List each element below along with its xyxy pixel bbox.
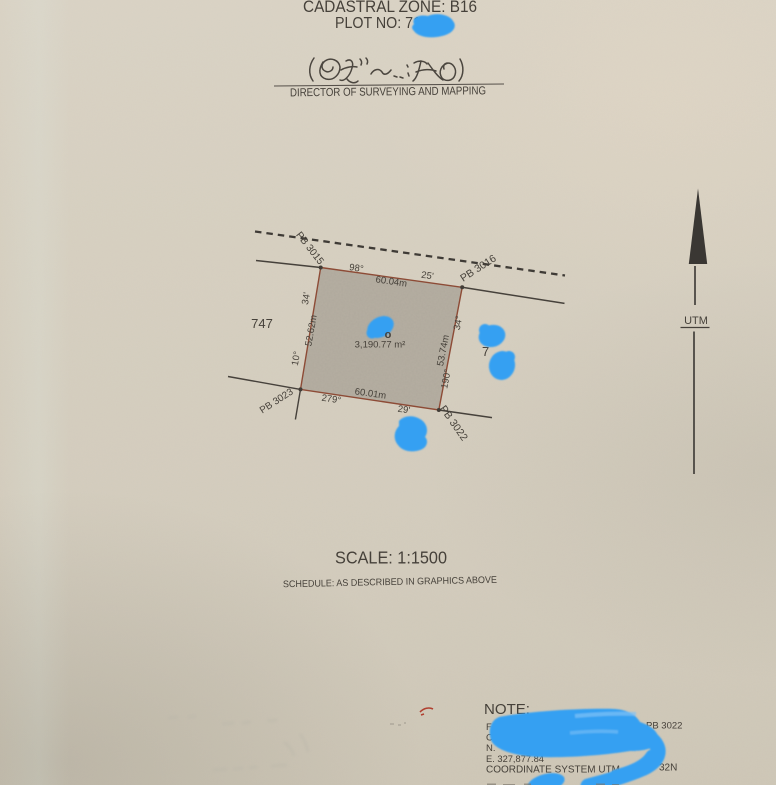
svg-text:98°: 98°: [348, 262, 364, 275]
svg-text:3,190.77 m²: 3,190.77 m²: [355, 340, 406, 351]
svg-text:PLOT NO: 71: PLOT NO: 71: [335, 15, 421, 32]
svg-text:CADASTRAL ZONE: B16: CADASTRAL ZONE: B16: [303, 0, 477, 16]
svg-text:UTM: UTM: [684, 315, 708, 327]
svg-text:747: 747: [251, 316, 273, 331]
svg-text:SCALE: 1:1500: SCALE: 1:1500: [335, 548, 447, 568]
svg-text:N.: N.: [486, 743, 496, 754]
svg-text:25': 25': [421, 270, 435, 283]
svg-text:32N: 32N: [659, 763, 677, 774]
svg-text:34': 34': [300, 291, 313, 305]
svg-text:29': 29': [397, 404, 411, 417]
svg-text:DIRECTOR OF SURVEYING AND MAPP: DIRECTOR OF SURVEYING AND MAPPING: [290, 85, 486, 99]
